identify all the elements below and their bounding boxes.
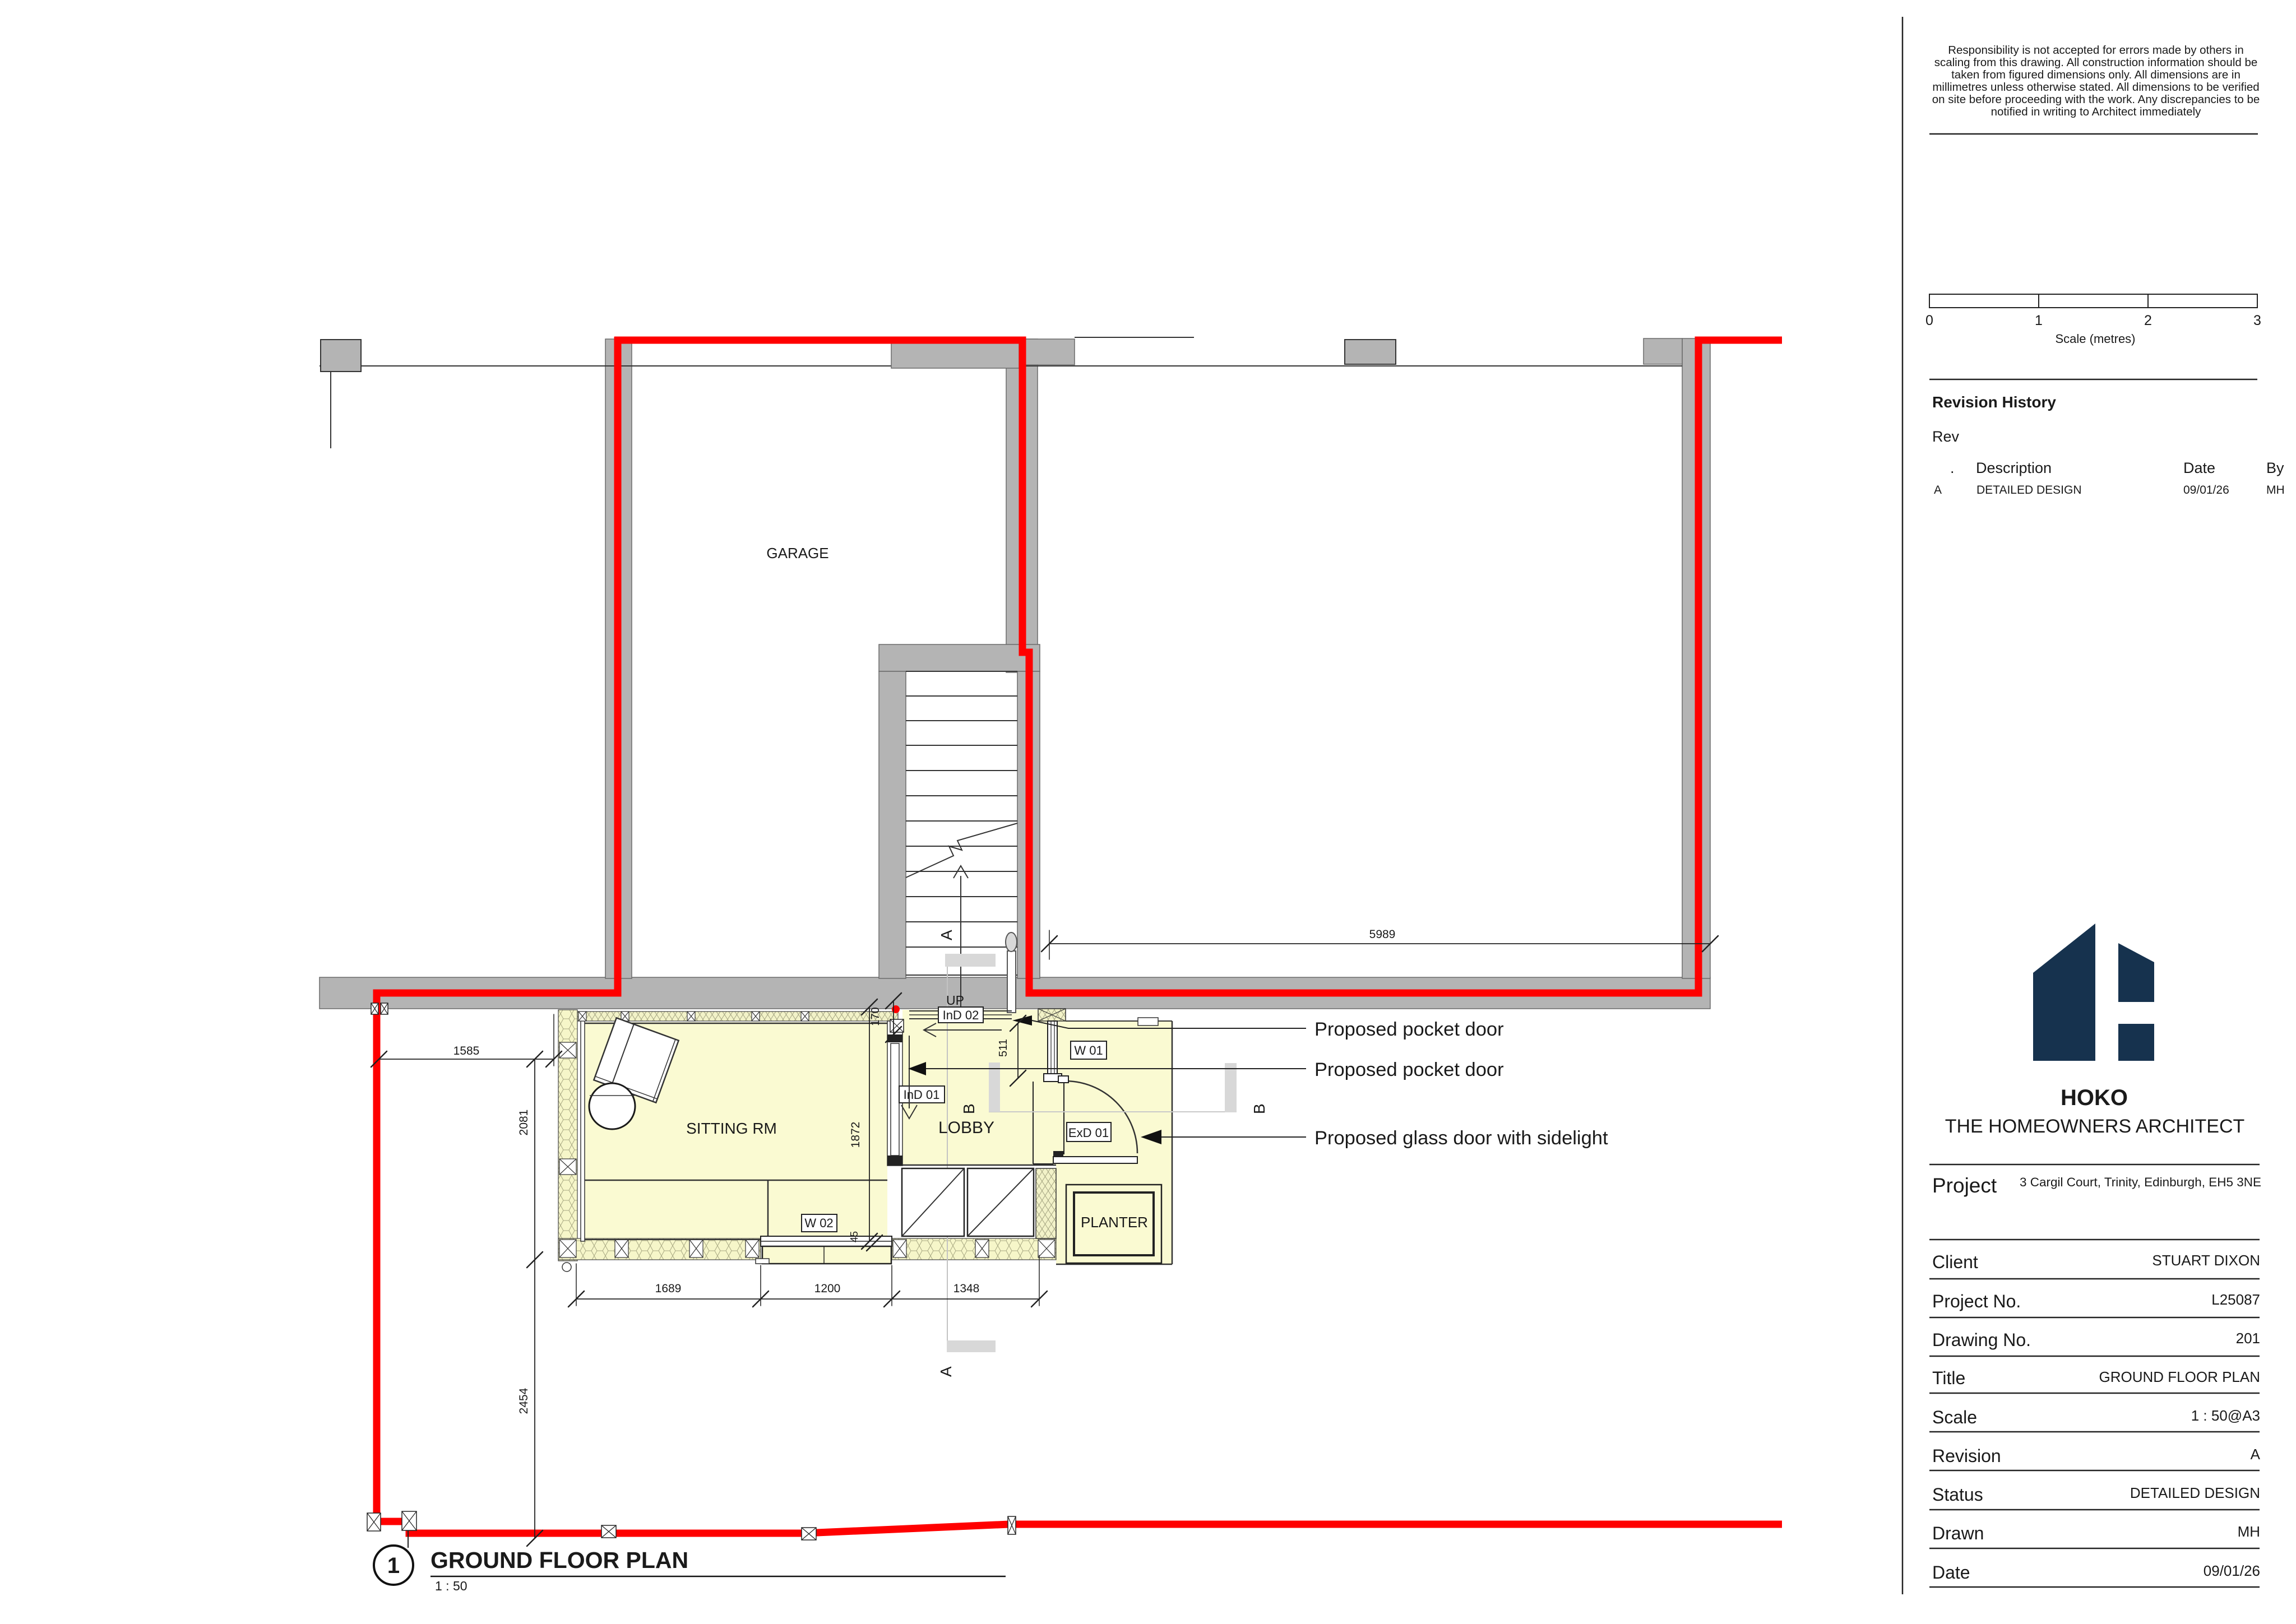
svg-text:B: B [1251, 1103, 1268, 1114]
svg-text:Status: Status [1932, 1484, 1983, 1505]
svg-text:1: 1 [387, 1553, 400, 1578]
svg-text:By: By [2266, 460, 2284, 476]
svg-text:09/01/26: 09/01/26 [2183, 484, 2229, 497]
svg-text:MH: MH [2266, 484, 2285, 497]
svg-text:170: 170 [869, 1007, 882, 1026]
svg-text:DETAILED DESIGN: DETAILED DESIGN [2130, 1484, 2260, 1501]
svg-text:2081: 2081 [517, 1110, 530, 1136]
svg-text:Revision History: Revision History [1932, 393, 2056, 411]
svg-text:1200: 1200 [814, 1282, 841, 1295]
svg-text:2454: 2454 [517, 1388, 530, 1414]
svg-text:.: . [1950, 460, 1955, 476]
svg-text:Rev: Rev [1932, 428, 1960, 445]
svg-text:L25087: L25087 [2211, 1291, 2260, 1308]
svg-text:Proposed glass door with sidel: Proposed glass door with sidelight [1314, 1127, 1608, 1149]
svg-text:1689: 1689 [655, 1282, 682, 1295]
svg-text:0: 0 [1925, 313, 1933, 328]
svg-text:DETAILED DESIGN: DETAILED DESIGN [1976, 484, 2081, 497]
svg-text:THE HOMEOWNERS ARCHITECT: THE HOMEOWNERS ARCHITECT [1945, 1116, 2245, 1137]
svg-text:A: A [2251, 1446, 2261, 1463]
svg-text:1585: 1585 [453, 1045, 480, 1057]
svg-text:Client: Client [1932, 1252, 1978, 1272]
svg-text:Scale (metres): Scale (metres) [2055, 332, 2135, 346]
svg-text:GROUND FLOOR PLAN: GROUND FLOOR PLAN [430, 1547, 688, 1573]
svg-text:201: 201 [2236, 1330, 2260, 1347]
svg-text:Description: Description [1976, 460, 2052, 476]
svg-text:Revision: Revision [1932, 1446, 2001, 1466]
svg-text:GROUND FLOOR PLAN: GROUND FLOOR PLAN [2099, 1368, 2261, 1385]
svg-text:3: 3 [2253, 313, 2261, 328]
svg-text:1: 1 [2035, 313, 2043, 328]
svg-text:millimetres unless otherwise s: millimetres unless otherwise stated. All… [1932, 81, 2259, 94]
svg-text:taken from figured dimensions: taken from figured dimensions only. All … [1951, 68, 2241, 81]
svg-text:Drawn: Drawn [1932, 1523, 1984, 1543]
svg-text:Date: Date [1932, 1562, 1970, 1583]
svg-text:ExD 01: ExD 01 [1068, 1126, 1109, 1140]
svg-text:5989: 5989 [1369, 928, 1396, 941]
svg-text:B: B [960, 1103, 978, 1114]
svg-text:HOKO: HOKO [2061, 1085, 2128, 1110]
svg-text:1348: 1348 [953, 1282, 980, 1295]
svg-text:STUART DIXON: STUART DIXON [2152, 1252, 2260, 1269]
svg-text:Scale: Scale [1932, 1407, 1977, 1427]
svg-text:A: A [937, 1366, 955, 1377]
svg-text:notified in writing to Archite: notified in writing to Architect immedia… [1991, 105, 2202, 118]
svg-text:45: 45 [849, 1231, 860, 1242]
svg-text:Title: Title [1932, 1368, 1965, 1388]
svg-text:LOBBY: LOBBY [938, 1119, 994, 1137]
svg-text:GARAGE: GARAGE [766, 545, 828, 562]
svg-text:Date: Date [2183, 460, 2215, 476]
svg-text:3 Cargil Court, Trinity, Edinb: 3 Cargil Court, Trinity, Edinburgh, EH5 … [2020, 1175, 2261, 1189]
svg-text:SITTING RM: SITTING RM [686, 1120, 777, 1137]
svg-text:UP: UP [946, 993, 964, 1008]
svg-text:Project No.: Project No. [1932, 1291, 2021, 1311]
svg-text:1 : 50@A3: 1 : 50@A3 [2191, 1407, 2260, 1424]
svg-text:MH: MH [2238, 1523, 2260, 1540]
svg-text:scaling from this drawing. All: scaling from this drawing. All construct… [1934, 56, 2258, 69]
svg-text:Proposed pocket door: Proposed pocket door [1314, 1019, 1504, 1040]
svg-text:Project: Project [1932, 1174, 1997, 1197]
svg-text:511: 511 [997, 1039, 1010, 1057]
svg-text:09/01/26: 09/01/26 [2204, 1562, 2260, 1579]
svg-text:1 : 50: 1 : 50 [435, 1579, 467, 1593]
svg-text:Drawing No.: Drawing No. [1932, 1330, 2031, 1350]
svg-text:Responsibility is not accepted: Responsibility is not accepted for error… [1948, 44, 2244, 57]
svg-text:PLANTER: PLANTER [1081, 1214, 1148, 1231]
svg-text:1872: 1872 [849, 1122, 862, 1148]
svg-text:on site before proceeding with: on site before proceeding with the work.… [1932, 93, 2260, 106]
svg-text:InD 02: InD 02 [943, 1008, 979, 1022]
svg-text:Proposed pocket door: Proposed pocket door [1314, 1059, 1504, 1080]
svg-text:A: A [938, 930, 955, 940]
svg-text:W 01: W 01 [1074, 1043, 1103, 1057]
svg-text:W 02: W 02 [804, 1216, 833, 1230]
svg-text:2: 2 [2144, 313, 2152, 328]
svg-text:A: A [1934, 484, 1942, 497]
